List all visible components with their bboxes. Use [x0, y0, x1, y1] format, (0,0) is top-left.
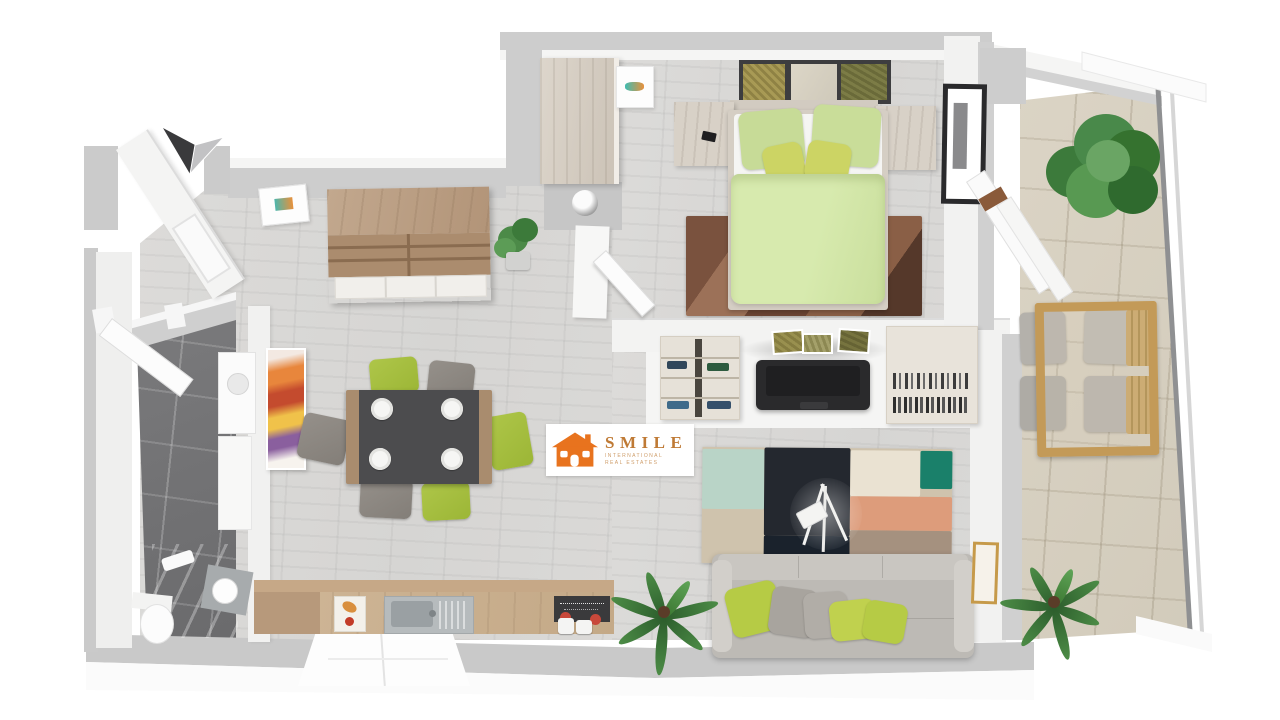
shelf-line [661, 357, 739, 359]
gold-frame [971, 542, 999, 605]
bed-picture-3 [837, 60, 891, 104]
plate-icon [369, 448, 391, 470]
sideboard-drawers [335, 275, 487, 300]
picture-inner [953, 103, 968, 169]
balcony-leafy-plant [1046, 108, 1166, 238]
plate-icon [371, 398, 393, 420]
sideboard-shelves [328, 233, 491, 278]
sink-basin [391, 601, 433, 627]
sofa-seam [882, 556, 883, 578]
sideboard-top [327, 187, 490, 236]
counter-left-block [254, 592, 320, 634]
frame-art [274, 197, 293, 211]
sofa-pillow-lime-3 [861, 599, 909, 646]
bed-picture-1 [739, 60, 789, 104]
duvet [731, 174, 885, 304]
living-right-wall-edge [1002, 334, 1022, 640]
north-arrow-icon [150, 118, 240, 188]
dining-chair-green-bottom [421, 481, 471, 521]
books-row [893, 397, 969, 413]
logo-brand: SMILE [605, 434, 709, 452]
house-icon [552, 431, 598, 469]
washbasin-icon [212, 578, 238, 604]
sink-drainer [439, 601, 469, 629]
dining-chair-gray-left [296, 412, 353, 467]
drawer-divider [385, 277, 387, 297]
shelf-line [661, 377, 739, 379]
tv-stand [800, 402, 828, 409]
bed-picture-2 [787, 60, 841, 104]
logo-card: SMILE INTERNATIONAL REAL ESTATES [546, 424, 694, 476]
plate-icon [441, 448, 463, 470]
sofa [712, 554, 974, 658]
shelf-item [707, 401, 731, 409]
balcony-corner-wall [980, 48, 1026, 104]
shelf-item [667, 401, 689, 409]
media-shelf-left [660, 336, 740, 420]
north-arrow-left-wing [163, 128, 195, 174]
entry-wall-stub-left [84, 146, 118, 230]
cutting-board [334, 596, 366, 632]
canister-icon [576, 620, 592, 634]
bathroom-door-post-right [164, 303, 186, 330]
plant-pot [658, 606, 670, 618]
kitchen-sink [384, 596, 474, 634]
window-seam [380, 634, 386, 686]
porthole-wall [544, 182, 622, 230]
canister-icon [558, 618, 574, 634]
tv-picture-1 [771, 329, 805, 355]
plant-pot [1048, 596, 1060, 608]
washing-machine [218, 352, 256, 434]
plate-icon [441, 398, 463, 420]
bathroom-cabinet [218, 436, 252, 530]
plant-foliage [512, 218, 538, 242]
kitchen-counter [254, 592, 614, 634]
tv-screen [766, 366, 860, 396]
panel-text-dots [564, 609, 598, 610]
outdoor-table [1035, 301, 1160, 457]
tv-picture-3 [837, 328, 871, 354]
dining-table [346, 390, 492, 484]
shelf-line [661, 397, 739, 399]
porthole-icon [572, 190, 598, 216]
shelf-item [707, 363, 729, 371]
books-row [893, 373, 969, 389]
bird-picture [616, 66, 654, 108]
sofa-backrest [718, 554, 968, 580]
faucet-icon [429, 610, 436, 617]
sideboard-plant [492, 216, 544, 276]
shelf-item [667, 361, 687, 369]
window-seam [328, 658, 448, 660]
tomato-icon [345, 617, 354, 626]
drawer-divider [435, 277, 437, 297]
logo-subtitle-1: INTERNATIONAL [605, 454, 663, 458]
logo-subtitle-2: REAL ESTATES [605, 461, 663, 465]
small-wall-frame [258, 184, 310, 227]
wardrobe [540, 58, 619, 184]
media-shelf-right [886, 326, 978, 424]
croissant-icon [341, 599, 359, 615]
sideboard [327, 187, 491, 304]
top-wall [500, 32, 992, 50]
shelf-divider [407, 234, 411, 276]
washer-door-icon [227, 373, 249, 395]
wardrobe-side-wall [506, 36, 542, 186]
plant-foliage [1086, 140, 1130, 182]
kitchen-window [298, 634, 470, 686]
sofa-seam [798, 556, 799, 578]
bird-art [625, 82, 644, 91]
panel-text-dots [560, 603, 604, 604]
floor-plan-render: SMILE INTERNATIONAL REAL ESTATES [0, 0, 1280, 720]
tv-picture-2 [802, 333, 833, 354]
tv [756, 360, 870, 410]
plant-pot [506, 252, 530, 270]
north-arrow-right-wing [190, 137, 224, 174]
toilet-icon [140, 604, 174, 644]
